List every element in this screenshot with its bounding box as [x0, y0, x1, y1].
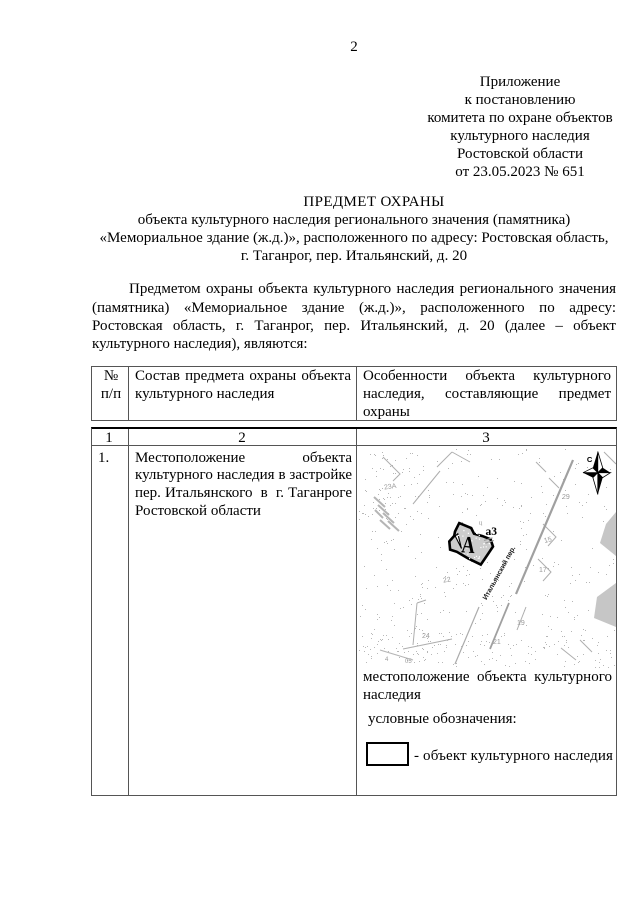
svg-text:17: 17 — [539, 567, 547, 574]
svg-text:23А: 23А — [384, 483, 398, 492]
svg-text:А: А — [461, 531, 477, 559]
svg-text:15: 15 — [543, 536, 552, 545]
svg-text:22: 22 — [443, 576, 452, 584]
svg-text:05: 05 — [405, 659, 412, 665]
svg-text:С: С — [587, 455, 593, 464]
svg-text:21: 21 — [493, 639, 501, 646]
svg-text:4: 4 — [385, 657, 389, 663]
svg-text:19: 19 — [517, 620, 525, 627]
svg-text:а3: а3 — [486, 526, 498, 538]
svg-text:24: 24 — [422, 633, 430, 640]
svg-text:ц: ц — [479, 521, 483, 527]
svg-text:29: 29 — [562, 494, 570, 501]
